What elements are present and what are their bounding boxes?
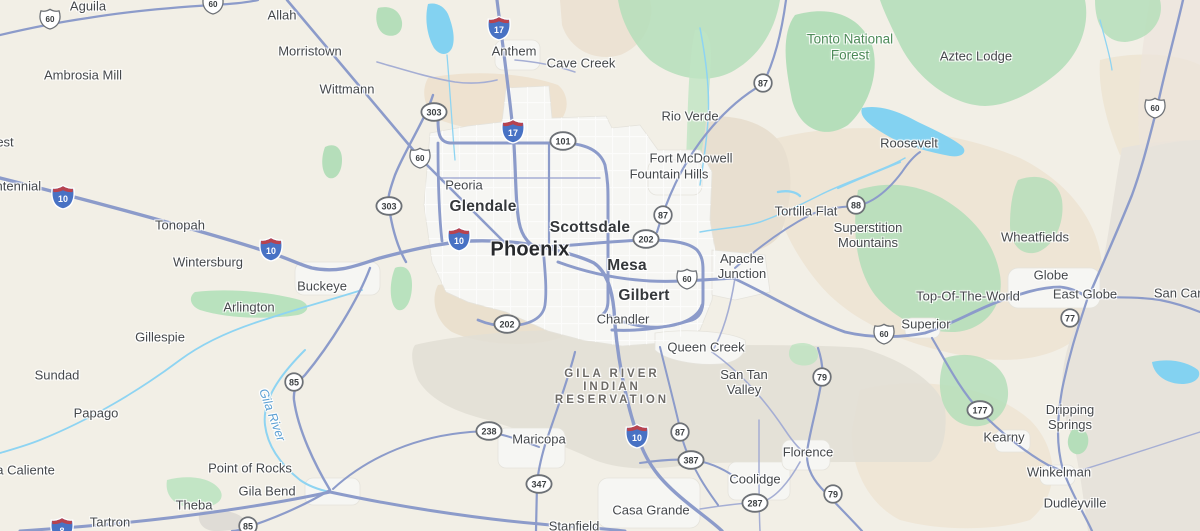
place-label-superstition-mountains[interactable]: SuperstitionMountains — [834, 221, 903, 251]
svg-text:17: 17 — [508, 128, 518, 138]
place-label-centennial[interactable]: Centennial — [0, 180, 41, 195]
place-label-theba[interactable]: Theba — [176, 499, 213, 514]
svg-text:85: 85 — [243, 521, 253, 531]
place-label-buckeye[interactable]: Buckeye — [297, 280, 347, 295]
svg-text:85: 85 — [289, 377, 299, 387]
svg-text:60: 60 — [880, 330, 889, 339]
route-shield-us-60: 60 — [409, 147, 431, 169]
svg-text:77: 77 — [1065, 313, 1075, 323]
place-label-cave-creek[interactable]: Cave Creek — [547, 57, 616, 72]
route-shield-ellipse-287: 287 — [741, 493, 770, 514]
place-label-fort-mcdowell[interactable]: Fort McDowell — [649, 152, 732, 167]
svg-text:88: 88 — [851, 200, 861, 210]
place-label-glendale[interactable]: Glendale — [449, 198, 516, 216]
route-shield-interstate-17: 17 — [487, 15, 512, 41]
route-shield-interstate-10: 10 — [51, 184, 76, 210]
place-label-east-globe[interactable]: East Globe — [1053, 288, 1117, 303]
svg-text:87: 87 — [675, 427, 685, 437]
svg-text:202: 202 — [500, 319, 515, 329]
svg-text:10: 10 — [266, 246, 276, 256]
svg-text:10: 10 — [632, 433, 642, 443]
place-label-tonopah[interactable]: Tonopah — [155, 219, 205, 234]
place-label-wheatfields[interactable]: Wheatfields — [1001, 231, 1069, 246]
place-label-wittmann[interactable]: Wittmann — [320, 83, 375, 98]
route-shield-circle-87: 87 — [669, 421, 691, 443]
map-canvas[interactable]: AguilaAllahMorristownAmbrosia MillWittma… — [0, 0, 1200, 531]
svg-text:238: 238 — [482, 426, 497, 436]
place-label-ambrosia-mill[interactable]: Ambrosia Mill — [44, 69, 122, 84]
place-label-gila-bend[interactable]: Gila Bend — [238, 485, 295, 500]
route-shield-ellipse-202: 202 — [493, 314, 522, 335]
route-shield-interstate-10: 10 — [259, 236, 284, 262]
svg-text:347: 347 — [532, 479, 547, 489]
route-shield-circle-87: 87 — [652, 204, 674, 226]
route-shield-ellipse-177: 177 — [966, 400, 995, 421]
place-label-gilbert[interactable]: Gilbert — [618, 287, 669, 305]
place-label-florence[interactable]: Florence — [783, 446, 834, 461]
svg-text:387: 387 — [684, 455, 699, 465]
place-label-allah[interactable]: Allah — [268, 9, 297, 24]
place-label-tortilla-flat[interactable]: Tortilla Flat — [775, 205, 838, 220]
place-label-arlington[interactable]: Arlington — [223, 301, 274, 316]
route-shield-ellipse-238: 238 — [475, 421, 504, 442]
place-label-papago[interactable]: Papago — [74, 407, 119, 422]
place-label-tonto-national-forest[interactable]: Tonto NationalForest — [807, 31, 893, 62]
route-shield-ellipse-101: 101 — [549, 131, 578, 152]
svg-text:60: 60 — [209, 0, 218, 9]
place-label-tartron[interactable]: Tartron — [90, 516, 130, 531]
place-label-top-of-the-world[interactable]: Top-Of-The-World — [916, 290, 1020, 305]
route-shield-us-60: 60 — [39, 8, 61, 30]
place-label-anthem[interactable]: Anthem — [492, 45, 537, 60]
svg-text:79: 79 — [817, 372, 827, 382]
route-shield-ellipse-303: 303 — [375, 196, 404, 217]
place-label-aztec-lodge[interactable]: Aztec Lodge — [940, 50, 1012, 65]
place-label-morristown[interactable]: Morristown — [278, 45, 342, 60]
route-shield-us-60: 60 — [202, 0, 224, 15]
place-label-maricopa[interactable]: Maricopa — [512, 433, 565, 448]
place-label-agua-caliente[interactable]: Agua Caliente — [0, 464, 55, 479]
place-label-sundad[interactable]: Sundad — [35, 369, 80, 384]
place-label-mesa[interactable]: Mesa — [607, 257, 647, 275]
route-shield-interstate-8: 8 — [50, 516, 75, 531]
place-label-stanfield[interactable]: Stanfield — [549, 520, 600, 531]
route-shield-us-60: 60 — [676, 268, 698, 290]
place-label-dudleyville[interactable]: Dudleyville — [1044, 497, 1107, 512]
svg-text:8: 8 — [60, 526, 65, 531]
route-shield-circle-85: 85 — [283, 371, 305, 393]
place-label-roosevelt[interactable]: Roosevelt — [880, 137, 938, 152]
route-shield-circle-88: 88 — [845, 194, 867, 216]
route-shield-ellipse-303: 303 — [420, 102, 449, 123]
place-label-gillespie[interactable]: Gillespie — [135, 331, 185, 346]
svg-text:60: 60 — [46, 15, 55, 24]
svg-text:60: 60 — [1151, 104, 1160, 113]
place-label-aguila[interactable]: Aguila — [70, 0, 106, 14]
place-label-scottsdale[interactable]: Scottsdale — [550, 219, 630, 237]
svg-text:10: 10 — [58, 194, 68, 204]
route-shield-interstate-10: 10 — [447, 226, 472, 252]
place-label-coolidge[interactable]: Coolidge — [729, 473, 780, 488]
place-label-queen-creek[interactable]: Queen Creek — [667, 341, 744, 356]
place-label-fountain-hills[interactable]: Fountain Hills — [630, 168, 709, 183]
route-shield-circle-77: 77 — [1059, 307, 1081, 329]
place-label-chandler[interactable]: Chandler — [597, 313, 650, 328]
route-shield-interstate-17: 17 — [501, 118, 526, 144]
place-label-dripping-springs[interactable]: DrippingSprings — [1046, 403, 1094, 433]
route-shield-interstate-10: 10 — [625, 423, 650, 449]
place-label-gila-river-indian-reservation[interactable]: GILA RIVERINDIANRESERVATION — [555, 368, 669, 408]
svg-text:87: 87 — [758, 78, 768, 88]
place-label-kearny[interactable]: Kearny — [983, 431, 1024, 446]
svg-text:202: 202 — [639, 234, 654, 244]
place-label-wintersburg[interactable]: Wintersburg — [173, 256, 243, 271]
svg-text:17: 17 — [494, 25, 504, 35]
route-shield-ellipse-202: 202 — [632, 229, 661, 250]
place-label-est[interactable]: est — [0, 136, 14, 151]
route-shield-ellipse-347: 347 — [525, 474, 554, 495]
svg-text:177: 177 — [973, 405, 988, 415]
svg-text:79: 79 — [828, 489, 838, 499]
place-label-superior[interactable]: Superior — [901, 318, 950, 333]
place-label-san-tan-valley[interactable]: San TanValley — [720, 368, 767, 398]
svg-text:10: 10 — [454, 236, 464, 246]
svg-text:60: 60 — [683, 275, 692, 284]
route-shield-us-60: 60 — [1144, 97, 1166, 119]
place-label-peoria[interactable]: Peoria — [445, 179, 483, 194]
route-shield-ellipse-387: 387 — [677, 450, 706, 471]
route-shield-circle-79: 79 — [822, 483, 844, 505]
place-label-winkelman[interactable]: Winkelman — [1027, 466, 1091, 481]
svg-text:287: 287 — [748, 498, 763, 508]
place-label-apache-junction[interactable]: ApacheJunction — [718, 252, 766, 282]
place-label-globe[interactable]: Globe — [1034, 269, 1069, 284]
svg-text:60: 60 — [416, 154, 425, 163]
place-label-rio-verde[interactable]: Rio Verde — [661, 110, 718, 125]
place-label-point-of-rocks[interactable]: Point of Rocks — [208, 462, 292, 477]
svg-text:303: 303 — [382, 201, 397, 211]
route-shield-circle-79: 79 — [811, 366, 833, 388]
svg-text:303: 303 — [427, 107, 442, 117]
svg-text:87: 87 — [658, 210, 668, 220]
route-shield-circle-87: 87 — [752, 72, 774, 94]
route-shield-us-60: 60 — [873, 323, 895, 345]
svg-text:101: 101 — [556, 136, 571, 146]
place-label-casa-grande[interactable]: Casa Grande — [612, 504, 689, 519]
place-label-phoenix[interactable]: Phoenix — [490, 239, 569, 262]
place-label-san-carlos[interactable]: San Carlos — [1154, 287, 1200, 302]
route-shield-circle-85: 85 — [237, 515, 259, 531]
